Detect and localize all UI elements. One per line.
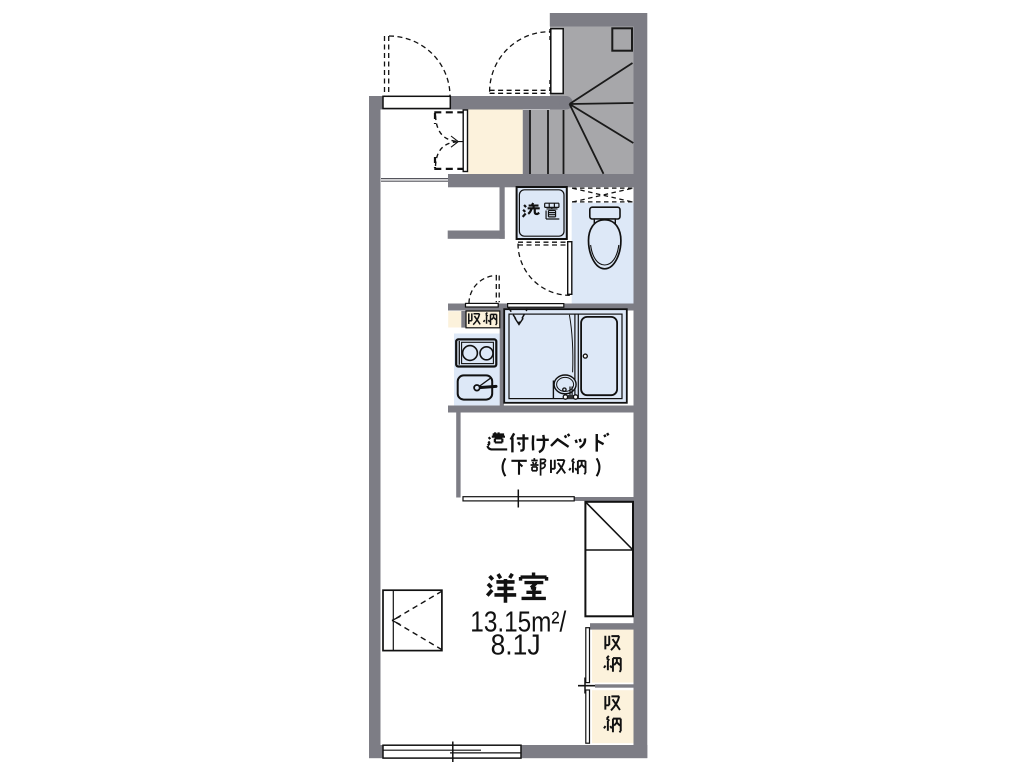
svg-text:8.1J: 8.1J [491, 630, 541, 662]
